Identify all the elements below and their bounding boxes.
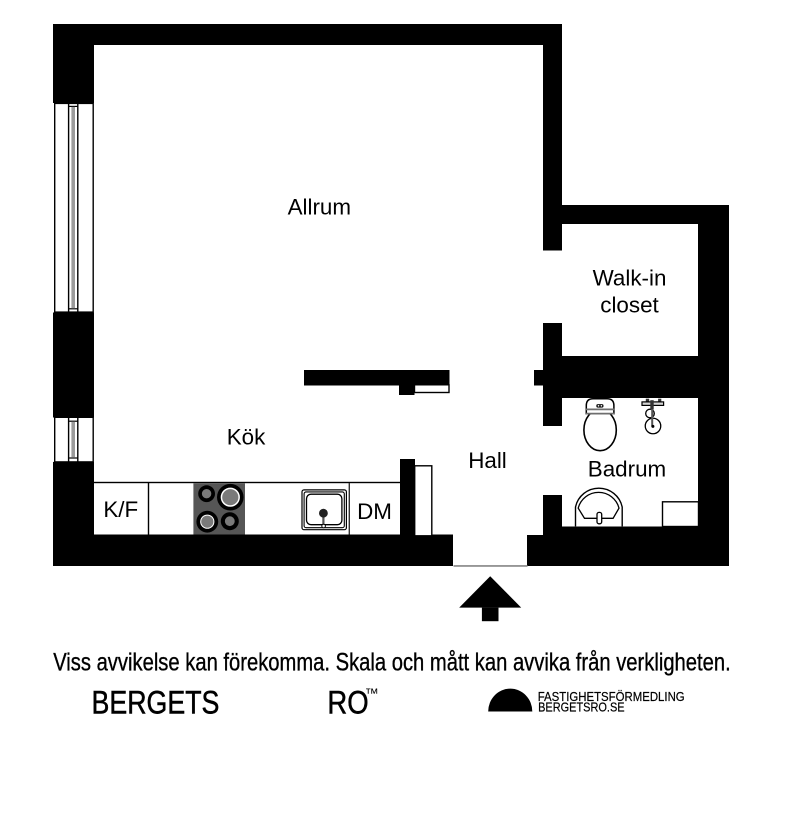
svg-text:BERGETSRO.SE: BERGETSRO.SE	[538, 701, 625, 715]
svg-text:™: ™	[365, 685, 379, 701]
svg-text:Hall: Hall	[468, 448, 507, 473]
svg-text:RO: RO	[327, 685, 368, 721]
svg-text:Walk-in: Walk-in	[593, 266, 667, 291]
svg-text:closet: closet	[600, 293, 659, 318]
svg-text:K/F: K/F	[103, 497, 138, 522]
svg-text:Badrum: Badrum	[588, 457, 666, 482]
svg-text:Viss avvikelse kan förekomma.: Viss avvikelse kan förekomma. Skala och …	[53, 649, 731, 677]
svg-text:DM: DM	[357, 499, 392, 524]
svg-text:Kök: Kök	[227, 425, 266, 450]
svg-text:Allrum: Allrum	[288, 195, 351, 220]
svg-text:BERGETS: BERGETS	[92, 685, 220, 721]
